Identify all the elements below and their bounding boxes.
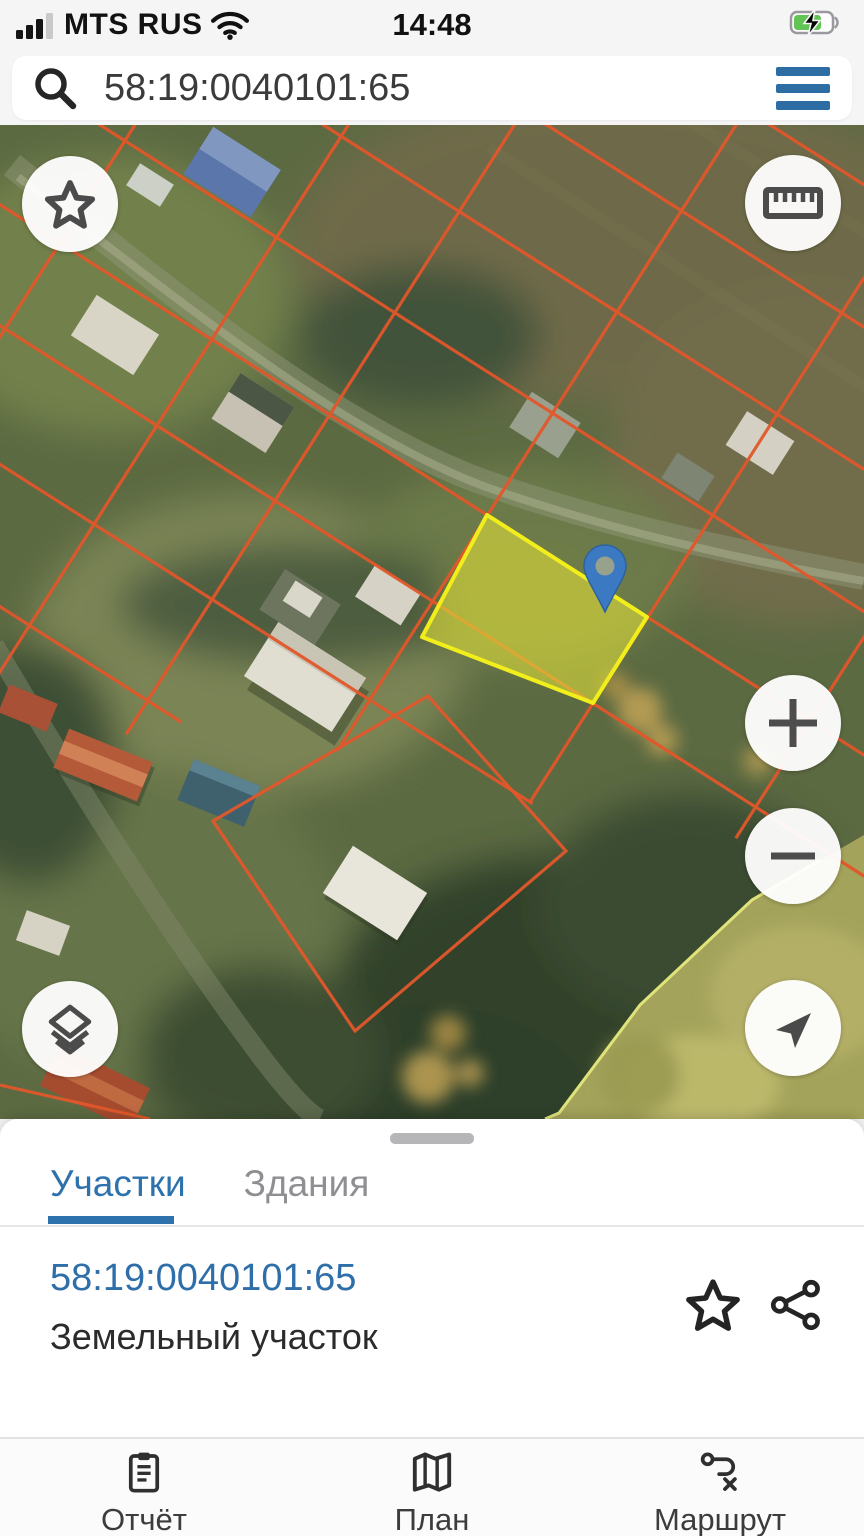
navigate-arrow-icon <box>765 1000 821 1056</box>
status-bar: 14:48 MTS RUS <box>0 0 864 50</box>
locate-button[interactable] <box>745 980 841 1076</box>
map-view[interactable] <box>0 125 864 1119</box>
nav-report[interactable]: Отчёт <box>0 1439 288 1536</box>
parcel-type-label: Земельный участок <box>50 1316 378 1358</box>
nav-route[interactable]: Маршрут <box>576 1439 864 1536</box>
search-icon <box>32 65 78 111</box>
search-area: 58:19:0040101:65 <box>0 50 864 125</box>
plan-map-icon <box>405 1451 459 1494</box>
layers-icon <box>41 1000 99 1058</box>
clock-label: 14:48 <box>0 7 864 43</box>
nav-report-label: Отчёт <box>101 1502 187 1536</box>
satellite-map <box>0 125 864 1119</box>
favorite-parcel-button[interactable] <box>684 1276 742 1339</box>
drag-handle[interactable] <box>390 1133 474 1144</box>
report-clipboard-icon <box>121 1451 167 1494</box>
share-button[interactable] <box>768 1277 824 1338</box>
active-tab-underline <box>48 1216 174 1224</box>
divider <box>0 1225 864 1227</box>
bottom-sheet: Участки Здания 58:19:0040101:65 Земельны… <box>0 1119 864 1437</box>
menu-button[interactable] <box>774 61 832 116</box>
parcel-result-row: 58:19:0040101:65 Земельный участок <box>0 1205 864 1358</box>
tab-parcels[interactable]: Участки <box>50 1163 186 1205</box>
hamburger-icon <box>776 67 830 76</box>
app-screen: 14:48 MTS RUS <box>0 0 864 1536</box>
star-icon <box>42 176 98 232</box>
star-outline-icon <box>684 1276 742 1334</box>
nav-route-label: Маршрут <box>654 1502 786 1536</box>
share-icon <box>768 1277 824 1333</box>
plus-icon <box>765 695 821 751</box>
zoom-out-button[interactable] <box>745 808 841 904</box>
measure-button[interactable] <box>745 155 841 251</box>
layers-button[interactable] <box>22 981 118 1077</box>
search-input[interactable]: 58:19:0040101:65 <box>104 67 774 110</box>
search-bar[interactable]: 58:19:0040101:65 <box>12 56 852 120</box>
tab-bar: Участки Здания <box>0 1119 864 1205</box>
nav-plan[interactable]: План <box>288 1439 576 1536</box>
bottom-nav: Отчёт План Маршрут <box>0 1437 864 1536</box>
ruler-icon <box>762 181 824 225</box>
minus-icon <box>765 828 821 884</box>
cadastral-number-link[interactable]: 58:19:0040101:65 <box>50 1257 378 1300</box>
battery-charging-icon <box>788 8 848 38</box>
tab-buildings[interactable]: Здания <box>244 1163 370 1205</box>
favorite-button[interactable] <box>22 156 118 252</box>
nav-plan-label: План <box>395 1502 470 1536</box>
zoom-in-button[interactable] <box>745 675 841 771</box>
route-icon <box>693 1451 747 1494</box>
